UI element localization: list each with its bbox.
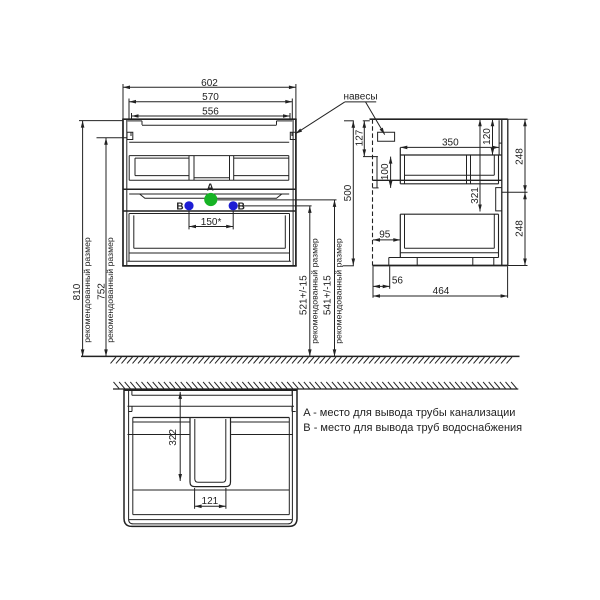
svg-text:A - место для вывода трубы кан: A - место для вывода трубы канализации	[303, 407, 515, 419]
svg-text:521+/-15: 521+/-15	[299, 275, 310, 315]
svg-text:B: B	[238, 201, 245, 212]
svg-text:рекомендованный размер: рекомендованный размер	[82, 237, 92, 343]
svg-text:B - место для вывода труб водо: B - место для вывода труб водоснабжения	[303, 422, 522, 434]
svg-text:541+/-15: 541+/-15	[323, 275, 334, 315]
svg-text:100: 100	[380, 163, 391, 180]
svg-text:B: B	[176, 201, 183, 212]
svg-text:350: 350	[442, 137, 459, 148]
svg-text:570: 570	[202, 92, 219, 103]
svg-text:рекомендованный размер: рекомендованный размер	[333, 238, 343, 344]
svg-text:150*: 150*	[201, 217, 222, 228]
svg-text:56: 56	[392, 275, 404, 286]
svg-text:322: 322	[168, 429, 179, 446]
svg-text:120: 120	[482, 128, 493, 145]
svg-text:навесы: навесы	[343, 92, 377, 103]
svg-text:248: 248	[514, 148, 525, 165]
svg-text:248: 248	[514, 220, 525, 237]
svg-text:рекомендованный размер: рекомендованный размер	[310, 238, 320, 344]
svg-text:500: 500	[343, 184, 354, 201]
svg-text:рекомендованный размер: рекомендованный размер	[105, 237, 115, 343]
svg-text:127: 127	[355, 129, 366, 146]
svg-text:602: 602	[201, 78, 218, 89]
svg-text:464: 464	[433, 286, 450, 297]
svg-text:556: 556	[202, 107, 219, 118]
svg-text:121: 121	[202, 496, 219, 507]
svg-text:A: A	[207, 182, 214, 193]
svg-text:95: 95	[379, 230, 391, 241]
svg-text:321: 321	[470, 187, 481, 204]
